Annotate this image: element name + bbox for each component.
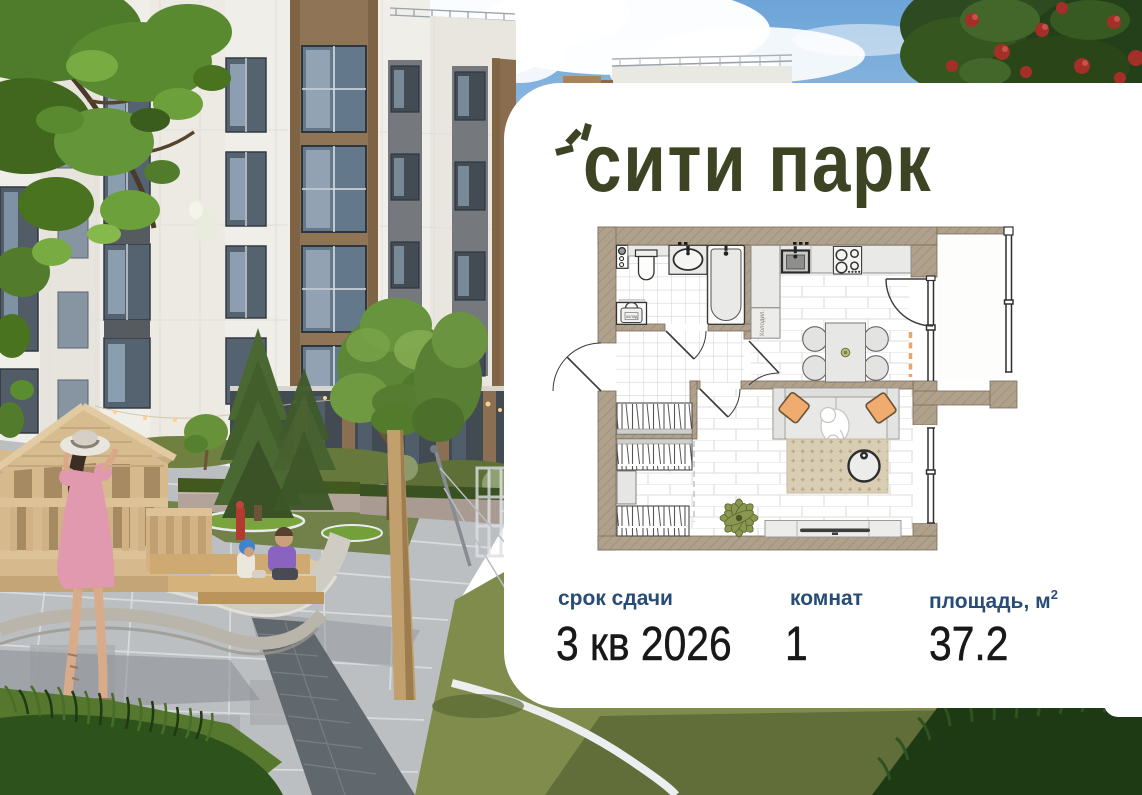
svg-text:Холодил.: Холодил. (759, 309, 766, 336)
svg-text:холод: холод (626, 314, 638, 319)
